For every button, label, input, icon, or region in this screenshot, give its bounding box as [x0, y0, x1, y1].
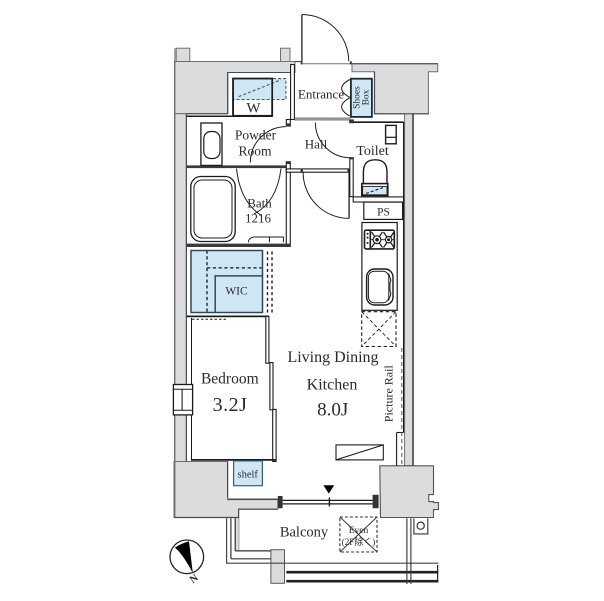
svg-text:Bedroom: Bedroom [201, 371, 259, 388]
svg-text:Picture Rail: Picture Rail [382, 365, 396, 423]
svg-text:8.0J: 8.0J [317, 400, 348, 421]
svg-text:Room: Room [238, 143, 272, 158]
svg-text:Hall: Hall [305, 137, 328, 152]
svg-text:Living Dining: Living Dining [287, 349, 378, 366]
svg-text:Kitchen: Kitchen [307, 377, 358, 394]
svg-text:Bath: Bath [247, 196, 272, 211]
svg-text:Even: Even [349, 526, 369, 536]
svg-text:Box: Box [362, 89, 372, 105]
svg-text:WIC: WIC [225, 286, 248, 298]
svg-text:Entrance: Entrance [298, 87, 344, 102]
svg-text:PS: PS [377, 207, 390, 219]
svg-text:W: W [246, 101, 261, 117]
svg-text:3.2J: 3.2J [213, 394, 248, 416]
svg-text:shelf: shelf [237, 470, 258, 481]
svg-text:Balcony: Balcony [280, 525, 329, 541]
svg-text:(2F除く): (2F除く) [342, 536, 376, 547]
svg-text:1216: 1216 [245, 211, 272, 226]
svg-text:Toilet: Toilet [356, 144, 389, 159]
